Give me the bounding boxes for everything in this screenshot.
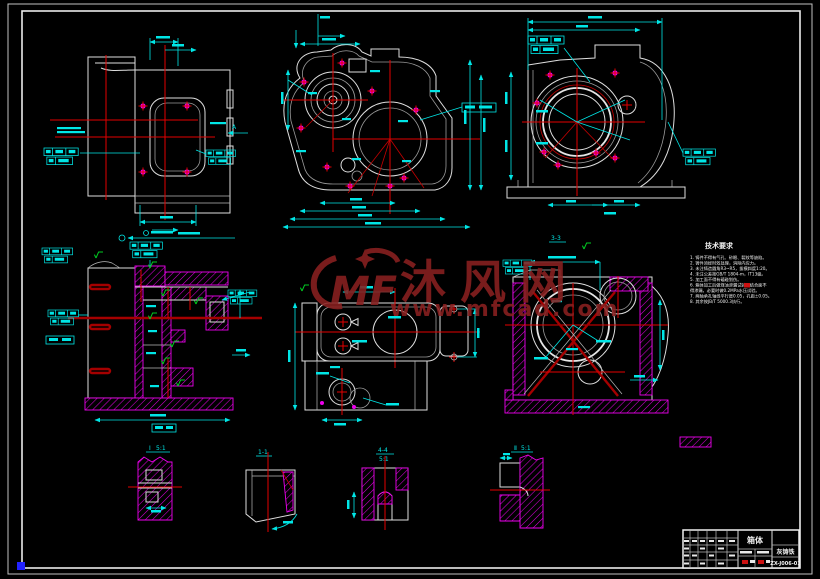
svg-text:5:1: 5:1 — [379, 456, 389, 463]
detail-4-label: Ⅱ — [514, 445, 517, 452]
title-block-material: 灰铸铁 — [776, 548, 794, 556]
section-3-3-label: 3-3 — [551, 235, 561, 242]
tech-requirements-title: 技术要求 — [705, 241, 734, 250]
title-block-part-name: 箱体 — [747, 535, 764, 545]
highlight-mark — [744, 283, 750, 288]
detail-view-1: Ⅰ 5:1 — [128, 445, 182, 520]
title-block: 箱体 灰铸铁 ZX-J006-01 — [683, 530, 801, 568]
cad-viewport: A — [0, 0, 820, 579]
view-a-label: A — [232, 124, 237, 131]
tech-requirements: 技术要求 1. 铸件不得有气孔、砂眼、裂纹等缺陷。 2. 铸件须经时效处理，消除… — [690, 241, 772, 305]
view-right — [505, 16, 715, 215]
title-block-drawing-no: ZX-J006-01 — [770, 561, 801, 567]
svg-text:5:1: 5:1 — [156, 445, 166, 452]
watermark: MF 沐风网 www.mfcad.com — [314, 249, 620, 322]
detail-view-4: Ⅱ 5:1 — [490, 445, 550, 528]
detail-1-label: Ⅰ — [149, 445, 151, 452]
cad-drawing: A — [0, 0, 820, 579]
detail-view-3: 4-4 5:1 — [347, 447, 408, 530]
view-front — [281, 14, 496, 227]
detail-view-2: 1-1 — [246, 449, 297, 532]
detail-3-label: 4-4 — [378, 447, 388, 454]
watermark-site-url: www.mfcad.com — [390, 297, 620, 322]
view-top-left: A — [44, 36, 248, 236]
hatch-block-right — [680, 437, 711, 447]
grip-marker — [17, 562, 25, 570]
detail-2-label: 1-1 — [258, 449, 268, 456]
svg-text:5:1: 5:1 — [521, 445, 531, 452]
svg-text:8. 其余按JB/T 5000.3执行。: 8. 其余按JB/T 5000.3执行。 — [690, 298, 745, 305]
watermark-logo: MF — [330, 269, 397, 315]
section-left — [42, 232, 262, 432]
